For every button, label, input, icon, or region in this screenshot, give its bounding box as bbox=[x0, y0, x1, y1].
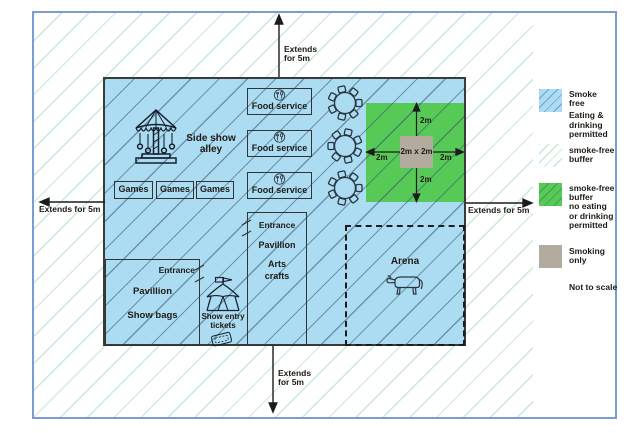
arts-pavillion-label: Pavillion bbox=[248, 241, 306, 251]
diagram-canvas: { "arrows": { "top": ["Extends", "for 5m… bbox=[0, 0, 640, 433]
extends-bottom-label: Extends for 5m bbox=[278, 369, 311, 387]
not-to-scale-note: Not to scale bbox=[569, 283, 617, 292]
legend-swatch-smoke-free bbox=[539, 89, 562, 112]
showbags-pavillion-label: Pavillion bbox=[106, 287, 199, 297]
side-show-alley-label: Side show alley bbox=[180, 134, 242, 156]
legend-swatch-green-buffer bbox=[539, 183, 562, 206]
show-entry-tickets-label: Show entry tickets bbox=[198, 313, 248, 330]
games-stall-3: Games bbox=[196, 181, 234, 199]
legend-swatch-smoking bbox=[539, 245, 562, 268]
food-service-3: Food service bbox=[247, 172, 312, 199]
dim-left-label: 2m bbox=[376, 154, 388, 163]
carousel-icon bbox=[129, 107, 183, 167]
legend-swatch-buffer bbox=[539, 144, 562, 167]
picnic-table-icon bbox=[325, 168, 365, 208]
showbags-pavilion: Entrance Pavillion Show bags bbox=[105, 259, 200, 346]
showbags-entrance-label: Entrance bbox=[159, 266, 195, 275]
arts-crafts-pavilion: Entrance Pavillion Arts crafts bbox=[247, 212, 307, 346]
food-service-1: Food service bbox=[247, 88, 312, 115]
legend-smoking-text: Smoking only bbox=[569, 247, 617, 265]
extends-right-label: Extends for 5m bbox=[468, 206, 529, 215]
dim-bottom-label: 2m bbox=[420, 176, 432, 185]
extends-left-label: Extends for 5m bbox=[39, 205, 100, 214]
food-service-2: Food service bbox=[247, 130, 312, 157]
games-stall-2: Games bbox=[156, 181, 194, 199]
picnic-table-icon bbox=[325, 126, 365, 166]
games-stall-1: Games bbox=[114, 181, 153, 199]
tent-icon bbox=[203, 276, 243, 313]
smoking-area: 2m x 2m bbox=[400, 136, 433, 168]
legend-buffer-text: smoke-free buffer bbox=[569, 146, 617, 164]
arena: Arena bbox=[345, 225, 465, 346]
dim-top-label: 2m bbox=[420, 117, 432, 126]
dim-right-label: 2m bbox=[440, 154, 452, 163]
crafts-label: crafts bbox=[248, 272, 306, 282]
legend-green-buffer-text: smoke-free buffer no eating or drinking … bbox=[569, 184, 617, 230]
extends-top-label: Extends for 5m bbox=[284, 45, 317, 63]
cow-icon bbox=[385, 272, 425, 298]
ticket-icon bbox=[209, 329, 237, 347]
arena-label: Arena bbox=[347, 257, 463, 268]
smoking-area-label: 2m x 2m bbox=[400, 148, 432, 157]
arts-entrance-label: Entrance bbox=[248, 221, 306, 230]
arts-label: Arts bbox=[248, 260, 306, 270]
picnic-table-icon bbox=[325, 83, 365, 123]
legend-smoke-free-text: Smoke free Eating & drinking permitted bbox=[569, 90, 617, 139]
showbags-label: Show bags bbox=[106, 311, 199, 321]
